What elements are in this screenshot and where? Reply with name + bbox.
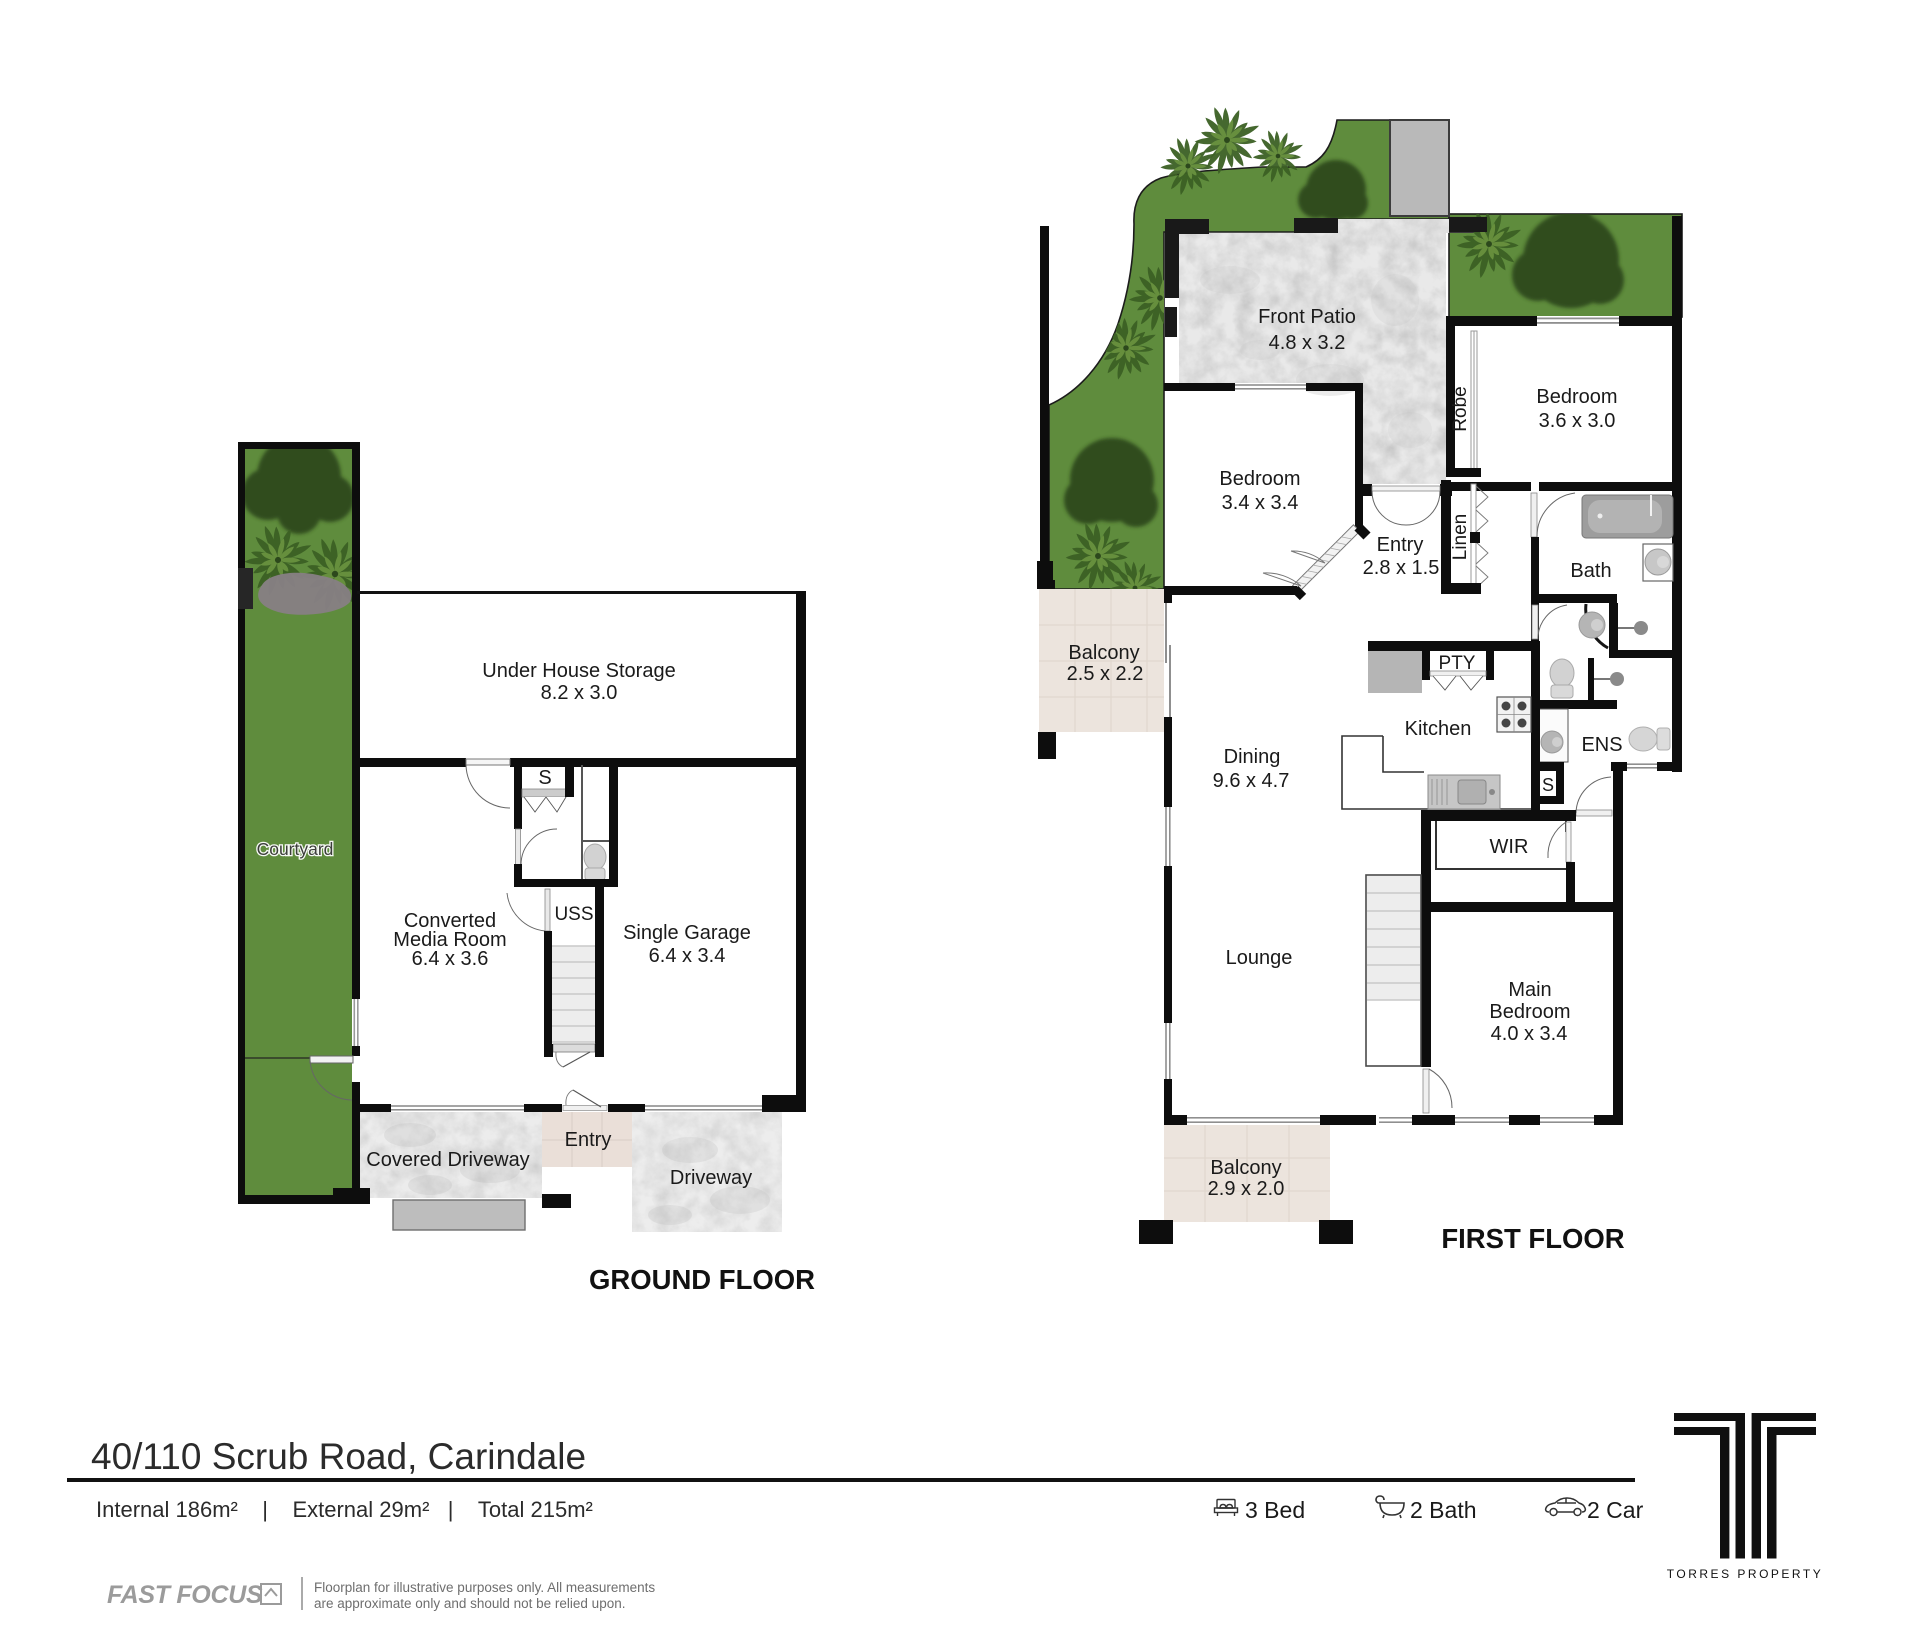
- svg-text:6.4 x 3.6: 6.4 x 3.6: [412, 948, 489, 970]
- svg-text:9.6 x 4.7: 9.6 x 4.7: [1213, 770, 1290, 792]
- svg-text:Bedroom: Bedroom: [1489, 1001, 1570, 1023]
- svg-text:3.4 x 3.4: 3.4 x 3.4: [1222, 492, 1299, 514]
- svg-text:Internal 186m² | Externa: Internal 186m² | External 29m² | Total 2…: [96, 1497, 593, 1522]
- svg-text:Main: Main: [1508, 979, 1551, 1001]
- svg-text:Driveway: Driveway: [670, 1167, 752, 1189]
- svg-text:TORRES PROPERTY: TORRES PROPERTY: [1667, 1567, 1823, 1581]
- svg-text:3.6 x 3.0: 3.6 x 3.0: [1539, 410, 1616, 432]
- svg-text:2 Bath: 2 Bath: [1410, 1497, 1477, 1523]
- svg-text:FAST FOCUS: FAST FOCUS: [107, 1581, 263, 1609]
- svg-text:are approximate only and shoul: are approximate only and should not be r…: [314, 1596, 625, 1611]
- svg-text:3 Bed: 3 Bed: [1245, 1497, 1305, 1523]
- svg-text:Balcony: Balcony: [1210, 1157, 1281, 1179]
- svg-text:ENS: ENS: [1581, 734, 1622, 756]
- svg-text:2 Car: 2 Car: [1587, 1497, 1644, 1523]
- svg-text:Covered Driveway: Covered Driveway: [366, 1149, 529, 1171]
- svg-text:40/110 Scrub Road, Carindale: 40/110 Scrub Road, Carindale: [91, 1436, 586, 1477]
- svg-text:Bedroom: Bedroom: [1219, 468, 1300, 490]
- svg-text:2.9 x 2.0: 2.9 x 2.0: [1208, 1178, 1285, 1200]
- svg-text:Kitchen: Kitchen: [1405, 718, 1472, 740]
- svg-text:Front Patio: Front Patio: [1258, 306, 1356, 328]
- svg-text:FIRST FLOOR: FIRST FLOOR: [1441, 1223, 1624, 1254]
- svg-text:WIR: WIR: [1490, 836, 1529, 858]
- svg-text:Entry: Entry: [565, 1129, 612, 1151]
- svg-text:2.8 x 1.5: 2.8 x 1.5: [1363, 557, 1440, 579]
- svg-text:Entry: Entry: [1377, 534, 1424, 556]
- svg-text:Courtyard: Courtyard: [257, 839, 334, 859]
- svg-text:GROUND FLOOR: GROUND FLOOR: [589, 1264, 815, 1295]
- svg-text:Floorplan for illustrative pur: Floorplan for illustrative purposes only…: [314, 1580, 655, 1595]
- svg-text:S: S: [1542, 775, 1554, 795]
- svg-text:4.8 x 3.2: 4.8 x 3.2: [1269, 332, 1346, 354]
- svg-text:Linen: Linen: [1450, 514, 1471, 561]
- svg-text:Single Garage: Single Garage: [623, 922, 751, 944]
- svg-text:8.2 x 3.0: 8.2 x 3.0: [541, 682, 618, 704]
- svg-text:2.5 x 2.2: 2.5 x 2.2: [1067, 663, 1144, 685]
- svg-text:Under House Storage: Under House Storage: [482, 660, 675, 682]
- svg-text:4.0 x 3.4: 4.0 x 3.4: [1491, 1023, 1568, 1045]
- svg-text:Lounge: Lounge: [1226, 947, 1293, 969]
- svg-text:S: S: [538, 767, 551, 789]
- svg-text:Balcony: Balcony: [1068, 642, 1139, 664]
- svg-text:Bath: Bath: [1570, 560, 1611, 582]
- svg-text:Dining: Dining: [1224, 746, 1281, 768]
- svg-text:Bedroom: Bedroom: [1536, 386, 1617, 408]
- svg-text:Robe: Robe: [1450, 386, 1471, 431]
- svg-text:USS: USS: [554, 904, 593, 925]
- svg-text:6.4 x 3.4: 6.4 x 3.4: [649, 945, 726, 967]
